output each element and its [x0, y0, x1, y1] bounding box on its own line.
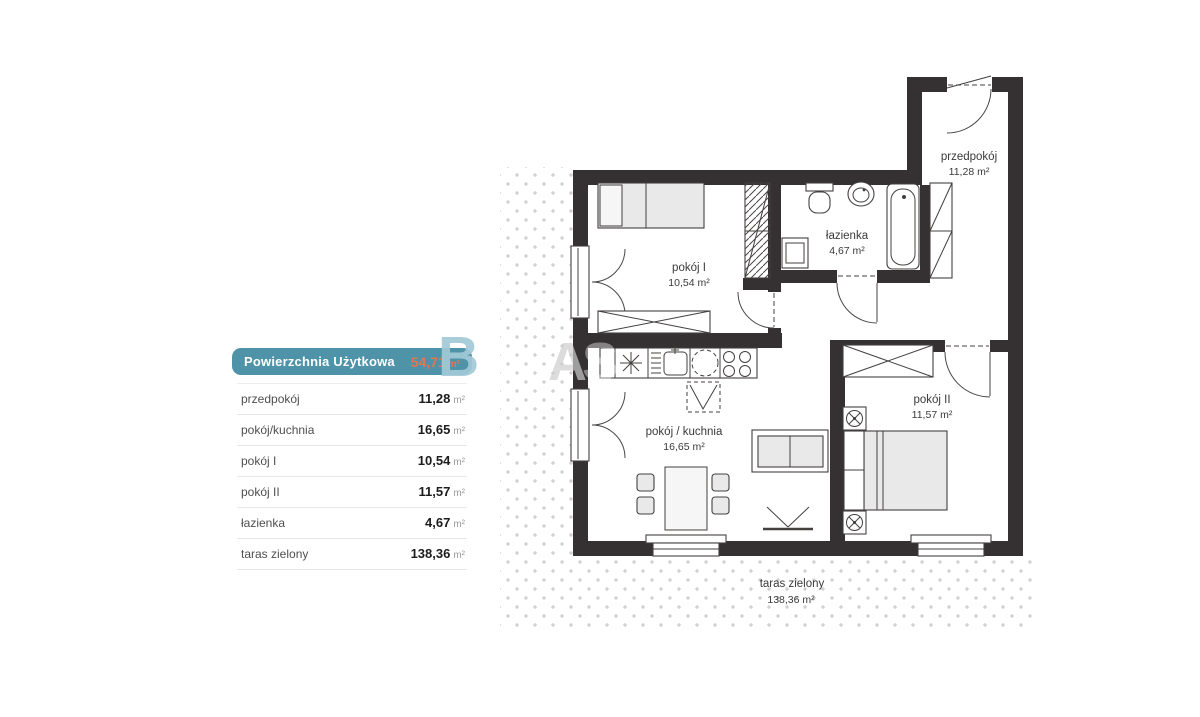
- dining-table: [665, 467, 707, 530]
- row-unit: m²: [453, 457, 465, 468]
- row-unit: m²: [453, 488, 465, 499]
- row-number: 16,65: [418, 422, 451, 437]
- sofa: [752, 430, 828, 472]
- pokoj1-label: pokój I: [672, 262, 706, 274]
- row-label: łazienka: [241, 516, 285, 530]
- row-label: pokój II: [241, 485, 280, 499]
- nightstand-lamp-bottom: [843, 511, 866, 534]
- row-label: przedpokój: [241, 392, 300, 406]
- bed-double: [844, 431, 947, 510]
- window-kuchnia: [646, 535, 726, 556]
- door-pokoj2: [945, 346, 990, 397]
- taras-area: 138,36 m²: [767, 594, 815, 606]
- toilet: [806, 183, 833, 213]
- pokoj1-area: 10,54 m²: [668, 277, 710, 289]
- dishwasher-zone: [687, 382, 720, 412]
- bed-single: [598, 183, 704, 228]
- row-number: 138,36: [411, 546, 451, 561]
- przedpokoj-area: 11,28 m²: [949, 166, 990, 178]
- row-number: 11,28: [419, 391, 451, 406]
- area-row-pokoj-1: pokój I 10,54m²: [237, 446, 467, 477]
- tv-icon: [763, 507, 813, 529]
- row-value: 10,54m²: [418, 452, 465, 470]
- panel-header: Powierzchnia Użytkowa 54,71m²: [232, 348, 472, 375]
- row-number: 4,67: [425, 515, 450, 530]
- row-value: 4,67m²: [425, 514, 465, 532]
- area-row-przedpokoj: przedpokój 11,28m²: [237, 384, 467, 415]
- row-label: pokój/kuchnia: [241, 423, 314, 437]
- lazienka-area: 4,67 m²: [829, 245, 865, 257]
- area-row-taras: taras zielony 138,36m²: [237, 539, 467, 570]
- door-pokoj1: [738, 292, 774, 328]
- door-lazienka: [837, 276, 877, 323]
- lazienka-label: łazienka: [826, 230, 869, 242]
- entrance-door: [947, 76, 991, 133]
- kuchnia-label: pokój / kuchnia: [646, 426, 723, 438]
- taras-label: taras zielony: [760, 578, 825, 590]
- row-unit: m²: [453, 519, 465, 530]
- row-label: taras zielony: [241, 547, 308, 561]
- sink: [848, 182, 874, 206]
- panel-total-area: 54,71m²: [411, 354, 460, 370]
- area-row-lazienka: łazienka 4,67m²: [237, 508, 467, 539]
- total-area-value: 54,71: [411, 354, 446, 370]
- kuchnia-area: 16,65 m²: [663, 441, 705, 453]
- row-value: 138,36m²: [411, 545, 465, 563]
- panel-title: Powierzchnia Użytkowa: [244, 354, 395, 369]
- area-row-pokoj-kuchnia: pokój/kuchnia 16,65m²: [237, 415, 467, 446]
- total-area-unit: m²: [448, 359, 460, 370]
- pokoj2-label: pokój II: [913, 394, 950, 406]
- kitchen-counter: [600, 346, 757, 378]
- french-door-kuchnia: [571, 389, 625, 461]
- row-value: 11,57m²: [419, 483, 466, 501]
- wardrobe-przedpokoj: [930, 183, 952, 278]
- row-unit: m²: [453, 550, 465, 561]
- dresser-pokoj1: [598, 311, 710, 333]
- wardrobe-pokoj2: [843, 345, 933, 377]
- row-unit: m²: [453, 426, 465, 437]
- row-label: pokój I: [241, 454, 276, 468]
- row-number: 10,54: [418, 453, 451, 468]
- french-door-pokoj1: [571, 246, 625, 318]
- row-value: 16,65m²: [418, 421, 465, 439]
- wardrobe-pokoj1: [745, 183, 770, 278]
- floor-plan: pokój I 10,54 m² łazienka 4,67 m² przedp…: [0, 0, 1200, 717]
- window-pokoj2: [911, 535, 991, 556]
- area-row-pokoj-2: pokój II 11,57m²: [237, 477, 467, 508]
- bathtub: [887, 184, 919, 269]
- washing-machine: [782, 238, 808, 268]
- hob-asterisk-icon: [620, 352, 642, 374]
- area-rows: przedpokój 11,28m² pokój/kuchnia 16,65m²…: [237, 383, 467, 570]
- pokoj2-area: 11,57 m²: [912, 409, 953, 421]
- area-summary-panel: Powierzchnia Użytkowa 54,71m² przedpokój…: [232, 348, 472, 570]
- przedpokoj-label: przedpokój: [941, 151, 997, 163]
- row-unit: m²: [453, 395, 465, 406]
- row-number: 11,57: [419, 484, 451, 499]
- floorplan-page: pokój I 10,54 m² łazienka 4,67 m² przedp…: [0, 0, 1200, 717]
- nightstand-lamp-top: [843, 407, 866, 430]
- row-value: 11,28m²: [419, 390, 466, 408]
